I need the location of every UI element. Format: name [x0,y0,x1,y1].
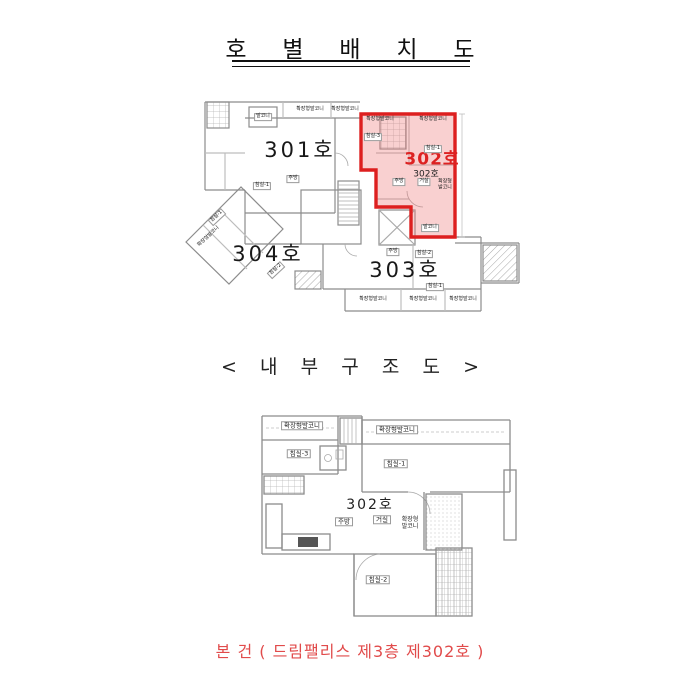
room-label-kitchen: 주방 [392,178,405,186]
room-label-ext-balcony: 확장형발코니 [448,297,478,303]
room-label-bedroom3: 침실-3 [364,133,382,141]
room-label-bedroom1: 침실-1 [253,182,271,190]
room-label-ext-balcony: 확장형발코니 [418,117,448,123]
unit-label-302: 302호 [346,494,394,514]
room-label-bedroom1: 침실-1 [426,283,444,291]
site-layout-plan: 301호 302호 302호 303호 304호 발코니 확장형발코니 확장형발… [183,93,530,323]
room-label-ext-balcony: 확장형발코니 [358,297,388,303]
page-title: 호 별 배 치 도 [0,30,700,64]
room-label-ext-balcony: 확장형발코니 [408,297,438,303]
room-label-ext-balcony: 확장형발코니 [330,107,360,113]
room-label-bedroom1: 침실-1 [424,145,442,153]
unit-label-301: 301호 [264,134,335,164]
unit-302-internal-plan: 302호 확장형발코니 침실-3 확장형발코니 침실-1 주방 거실 확장형 발… [258,408,522,630]
title-underline [232,60,470,67]
section-subtitle: < 내 부 구 조 도 > [0,352,700,379]
floor-plan-document: 호 별 배 치 도 [0,0,700,700]
room-label-kitchen: 주방 [335,517,353,526]
room-label-ext-balcony: 확장형발코니 [295,107,325,113]
subject-property-note: 본 건 ( 드림팰리스 제3층 제302호 ) [0,638,700,662]
room-label-bedroom1: 침실-1 [384,459,408,468]
room-label-bedroom2: 침실-2 [366,575,390,584]
room-label-bedroom2: 침실-2 [415,250,433,258]
room-label-living: 거실 [417,178,430,186]
unit-label-303: 303호 [369,254,440,284]
room-label-ext-balcony: 확장형발코니 [376,425,418,434]
room-label-ext-balcony: 확장형발코니 [281,421,323,430]
unit-label-304: 304호 [232,238,303,268]
room-label-ext-balcony: 확장형 발코니 [436,179,455,191]
room-label-bedroom3: 침실-3 [287,449,311,458]
room-label-ext-balcony: 확장형발코니 [365,117,395,123]
room-label-kitchen: 주방 [386,248,399,256]
room-label-living: 거실 [373,515,391,524]
site-plan-drawing [183,93,530,323]
room-label-balcony: 발코니 [254,113,272,121]
room-label-balcony: 발코니 [421,224,439,232]
room-label-ext-balcony: 확장형 발코니 [400,517,421,531]
room-label-kitchen: 주방 [286,175,299,183]
